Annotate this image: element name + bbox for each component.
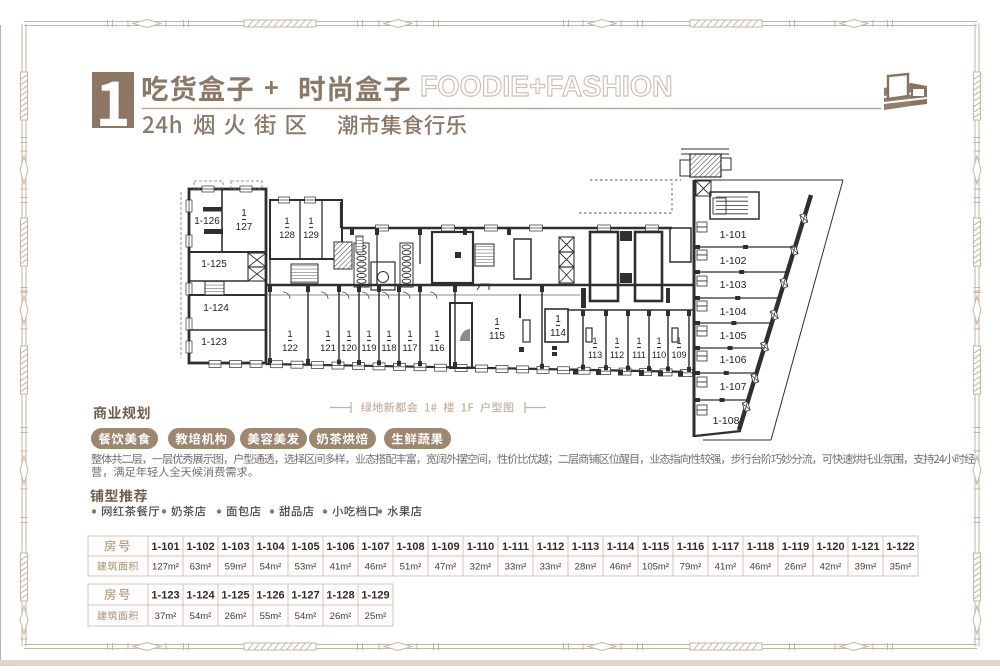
- svg-text:1-116: 1-116: [677, 541, 705, 553]
- svg-text:1-113: 1-113: [572, 541, 600, 553]
- svg-text:55m²: 55m²: [260, 611, 282, 622]
- svg-text:1-103: 1-103: [720, 279, 747, 291]
- svg-text:105m²: 105m²: [642, 562, 669, 573]
- svg-text:129: 129: [303, 230, 319, 241]
- svg-text:1-122: 1-122: [886, 541, 914, 553]
- svg-text:33m²: 33m²: [505, 562, 527, 573]
- svg-text:26m²: 26m²: [330, 611, 352, 622]
- svg-text:1-109: 1-109: [431, 541, 459, 553]
- svg-text:112: 112: [610, 350, 624, 360]
- svg-text:39m²: 39m²: [855, 562, 877, 573]
- svg-text:1-121: 1-121: [851, 541, 879, 553]
- svg-text:127: 127: [236, 222, 253, 233]
- svg-text:128: 128: [279, 230, 295, 241]
- svg-text:1: 1: [592, 336, 597, 346]
- svg-text:1: 1: [284, 216, 289, 227]
- svg-text:1-104: 1-104: [256, 541, 285, 553]
- svg-text:FOODIE+FASHION: FOODIE+FASHION: [420, 71, 673, 103]
- svg-text:1-123: 1-123: [151, 590, 179, 602]
- svg-text:1-114: 1-114: [607, 541, 635, 553]
- svg-text:25m²: 25m²: [365, 611, 387, 622]
- svg-text:1-120: 1-120: [816, 541, 844, 553]
- svg-text:111: 111: [632, 350, 646, 360]
- svg-text:1-123: 1-123: [201, 337, 227, 348]
- svg-text:51m²: 51m²: [400, 562, 422, 573]
- svg-text:1-105: 1-105: [291, 541, 319, 553]
- svg-text:1-108: 1-108: [396, 541, 424, 553]
- svg-text:1: 1: [407, 329, 412, 340]
- svg-text:46m²: 46m²: [365, 562, 387, 573]
- svg-text:1-107: 1-107: [720, 381, 747, 393]
- svg-text:1: 1: [241, 208, 247, 219]
- svg-text:41m²: 41m²: [715, 562, 737, 573]
- svg-text:1-104: 1-104: [720, 306, 747, 318]
- svg-text:1: 1: [434, 329, 439, 340]
- svg-text:54m²: 54m²: [295, 611, 317, 622]
- svg-text:53m²: 53m²: [295, 562, 317, 573]
- svg-text:116: 116: [429, 343, 444, 354]
- svg-text:59m²: 59m²: [225, 562, 247, 573]
- svg-text:26m²: 26m²: [225, 611, 247, 622]
- svg-text:122: 122: [282, 343, 298, 354]
- svg-text:115: 115: [489, 331, 505, 342]
- svg-text:117: 117: [402, 343, 417, 354]
- svg-text:1-105: 1-105: [720, 330, 747, 342]
- svg-text:110: 110: [652, 350, 666, 360]
- svg-text:1-106: 1-106: [326, 541, 354, 553]
- svg-text:1-106: 1-106: [720, 354, 747, 366]
- svg-text:1: 1: [636, 336, 641, 346]
- svg-text:1-124: 1-124: [203, 303, 229, 314]
- svg-text:1-102: 1-102: [720, 255, 747, 267]
- svg-text:26m²: 26m²: [785, 562, 807, 573]
- svg-text:35m²: 35m²: [890, 562, 912, 573]
- svg-text:1-108: 1-108: [713, 415, 740, 427]
- svg-text:119: 119: [361, 343, 376, 354]
- svg-text:47m²: 47m²: [435, 562, 457, 573]
- svg-text:46m²: 46m²: [750, 562, 772, 573]
- svg-text:54m²: 54m²: [260, 562, 282, 573]
- svg-text:1: 1: [386, 329, 391, 340]
- svg-text:1-119: 1-119: [782, 541, 810, 553]
- svg-text:1: 1: [325, 329, 330, 340]
- svg-text:1: 1: [555, 314, 561, 325]
- svg-text:1-127: 1-127: [291, 590, 319, 602]
- svg-text:114: 114: [550, 328, 566, 339]
- svg-text:1-125: 1-125: [201, 259, 227, 270]
- svg-text:79m²: 79m²: [680, 562, 702, 573]
- svg-text:28m²: 28m²: [575, 562, 597, 573]
- svg-text:1: 1: [614, 336, 619, 346]
- svg-text:1: 1: [287, 329, 292, 340]
- svg-text:32m²: 32m²: [470, 562, 492, 573]
- svg-text:1-124: 1-124: [186, 590, 215, 602]
- svg-text:1-126: 1-126: [194, 216, 220, 227]
- svg-text:1-110: 1-110: [467, 541, 495, 553]
- svg-text:113: 113: [588, 350, 602, 360]
- svg-text:1: 1: [656, 336, 661, 346]
- svg-text:1: 1: [494, 317, 500, 328]
- svg-text:1-126: 1-126: [256, 590, 284, 602]
- svg-text:1-115: 1-115: [642, 541, 670, 553]
- svg-text:1-101: 1-101: [151, 541, 179, 553]
- svg-text:54m²: 54m²: [190, 611, 212, 622]
- svg-text:1: 1: [308, 216, 313, 227]
- svg-text:1-125: 1-125: [221, 590, 249, 602]
- svg-text:42m²: 42m²: [820, 562, 842, 573]
- svg-text:1-129: 1-129: [361, 590, 389, 602]
- svg-text:109: 109: [671, 350, 686, 360]
- svg-text:41m²: 41m²: [330, 562, 352, 573]
- svg-text:37m²: 37m²: [155, 611, 177, 622]
- svg-text:121: 121: [320, 343, 336, 354]
- svg-text:46m²: 46m²: [610, 562, 632, 573]
- svg-text:1-128: 1-128: [326, 590, 354, 602]
- svg-text:1-118: 1-118: [747, 541, 775, 553]
- svg-text:1: 1: [676, 336, 681, 346]
- svg-text:1-112: 1-112: [537, 541, 565, 553]
- svg-text:120: 120: [341, 343, 357, 354]
- svg-text:63m²: 63m²: [190, 562, 212, 573]
- svg-text:1-101: 1-101: [720, 229, 747, 241]
- svg-text:1-117: 1-117: [712, 541, 740, 553]
- svg-text:1: 1: [346, 329, 351, 340]
- svg-text:33m²: 33m²: [540, 562, 562, 573]
- svg-text:1-103: 1-103: [221, 541, 249, 553]
- svg-text:127m²: 127m²: [152, 562, 179, 573]
- svg-text:1-107: 1-107: [361, 541, 389, 553]
- svg-text:1: 1: [366, 329, 371, 340]
- svg-text:1-102: 1-102: [186, 541, 214, 553]
- svg-text:118: 118: [381, 343, 396, 354]
- svg-text:1-111: 1-111: [502, 541, 529, 553]
